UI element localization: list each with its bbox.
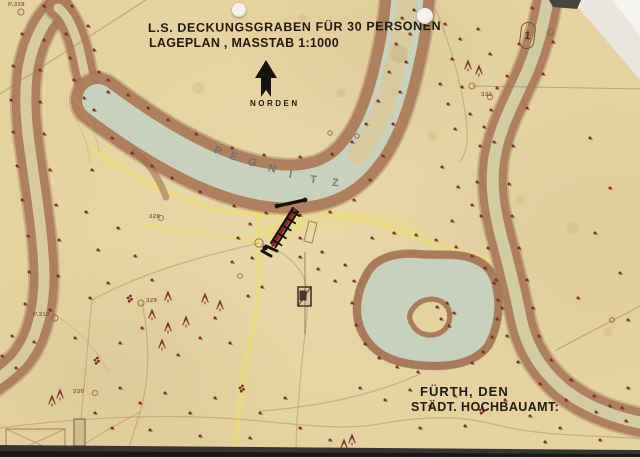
north-arrow-icon: [255, 60, 277, 97]
punch-hole-left: [232, 3, 246, 17]
scanned-map-document: L.S. DECKUNGSGRABEN FÜR 30 PERSONEN LAGE…: [0, 0, 640, 457]
punch-hole-right: [417, 8, 433, 24]
map-drawing: [0, 0, 640, 457]
